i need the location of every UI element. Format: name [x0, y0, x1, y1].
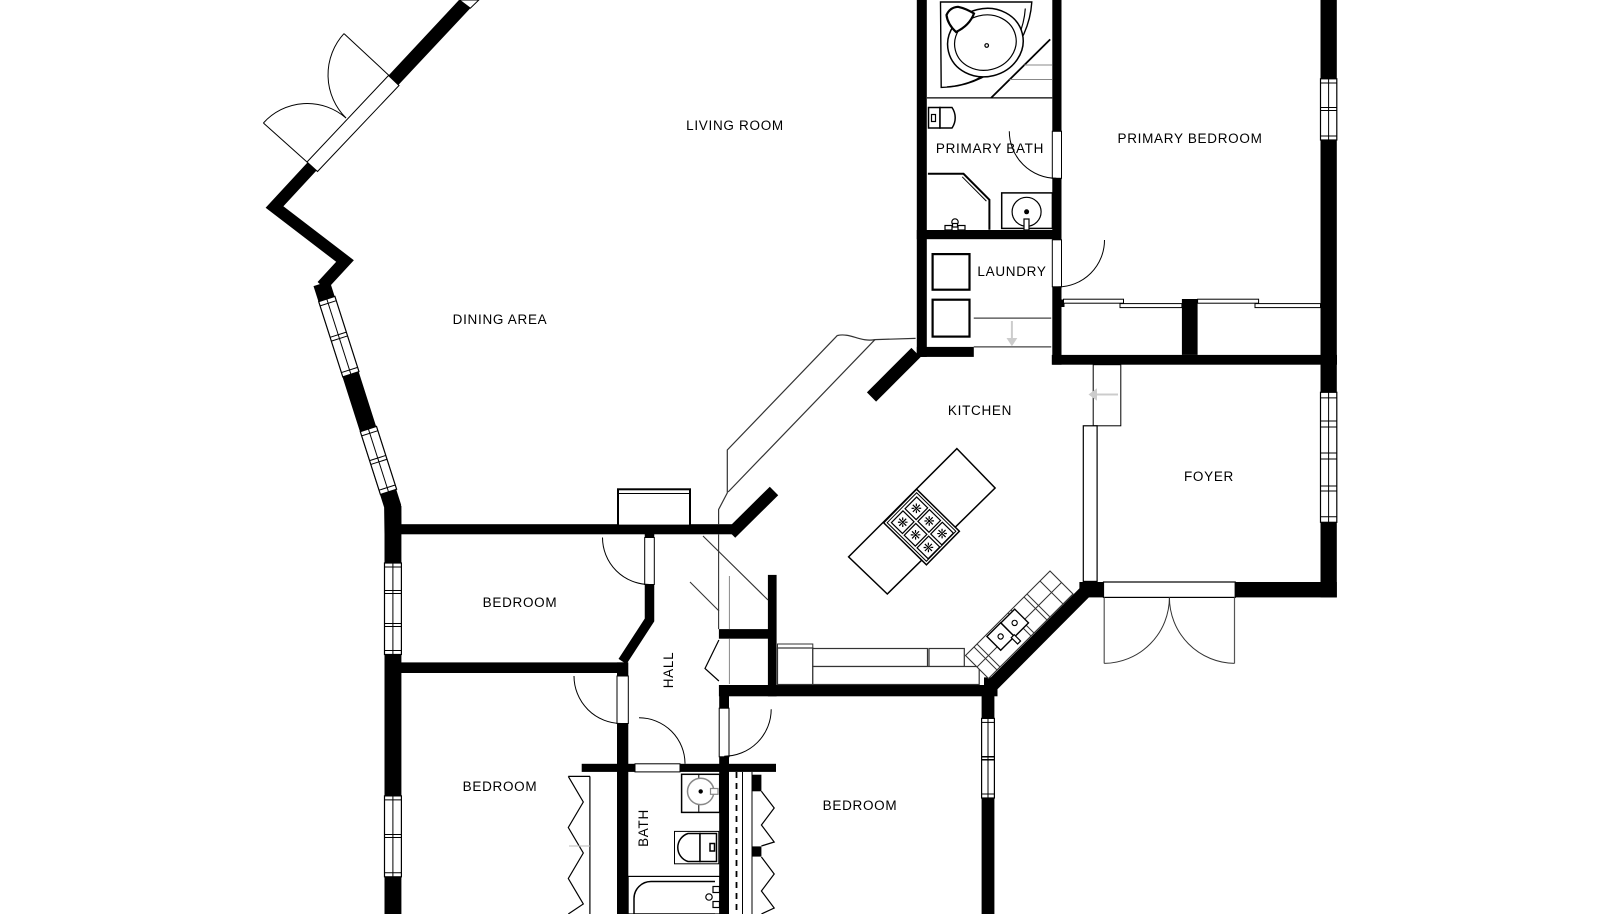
svg-text:DINING AREA: DINING AREA — [453, 312, 548, 327]
svg-text:BEDROOM: BEDROOM — [483, 595, 558, 610]
svg-text:PRIMARY BEDROOM: PRIMARY BEDROOM — [1117, 131, 1262, 146]
svg-text:HALL: HALL — [661, 652, 676, 689]
svg-text:FOYER: FOYER — [1184, 469, 1234, 484]
svg-text:PRIMARY BATH: PRIMARY BATH — [936, 141, 1044, 156]
svg-text:BEDROOM: BEDROOM — [463, 779, 538, 794]
svg-text:BEDROOM: BEDROOM — [823, 798, 898, 813]
svg-text:LAUNDRY: LAUNDRY — [977, 264, 1046, 279]
svg-text:BATH: BATH — [636, 809, 651, 847]
svg-text:LIVING ROOM: LIVING ROOM — [686, 118, 784, 133]
svg-text:KITCHEN: KITCHEN — [948, 403, 1012, 418]
